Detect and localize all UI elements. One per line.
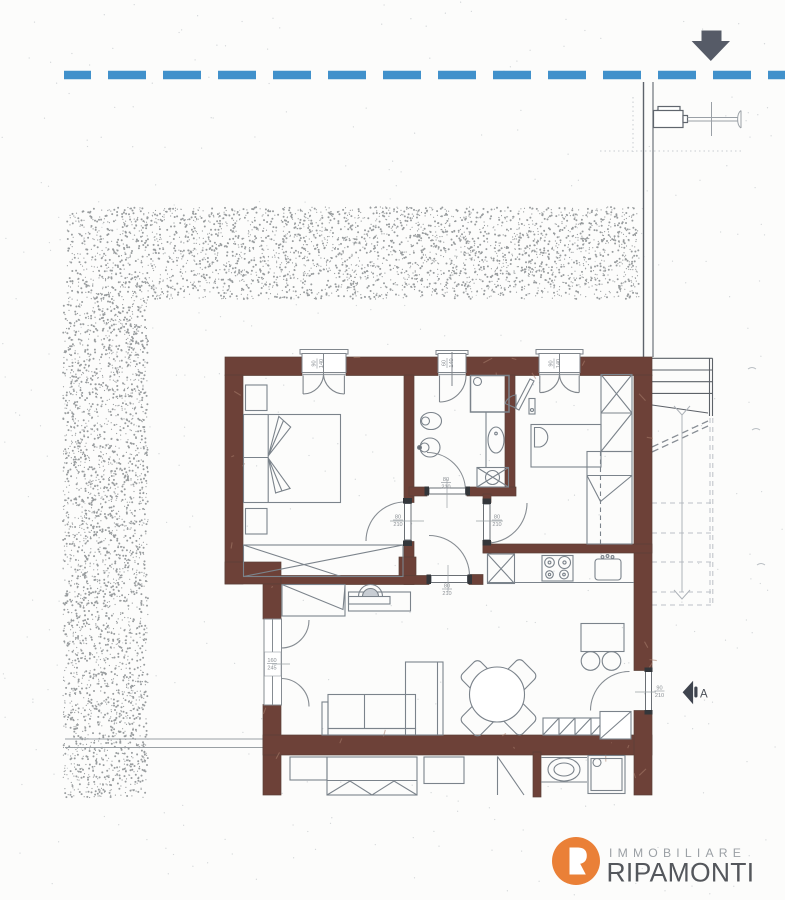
- svg-text:90: 90: [656, 686, 662, 692]
- svg-text:140: 140: [319, 359, 325, 368]
- svg-text:80: 80: [444, 584, 450, 590]
- svg-text:RIPAMONTI: RIPAMONTI: [607, 858, 755, 888]
- svg-text:A: A: [700, 689, 708, 701]
- svg-text:245: 245: [267, 666, 276, 672]
- svg-text:210: 210: [393, 522, 402, 528]
- svg-text:80: 80: [395, 515, 401, 521]
- svg-text:210: 210: [442, 591, 451, 597]
- svg-text:60: 60: [442, 360, 448, 366]
- svg-text:80: 80: [494, 515, 500, 521]
- svg-text:90: 90: [549, 360, 555, 366]
- svg-text:80: 80: [443, 477, 449, 483]
- svg-text:90: 90: [312, 360, 318, 366]
- svg-text:210: 210: [492, 522, 501, 528]
- svg-text:210: 210: [655, 693, 664, 699]
- svg-text:160: 160: [267, 658, 276, 664]
- svg-text:210: 210: [441, 485, 450, 491]
